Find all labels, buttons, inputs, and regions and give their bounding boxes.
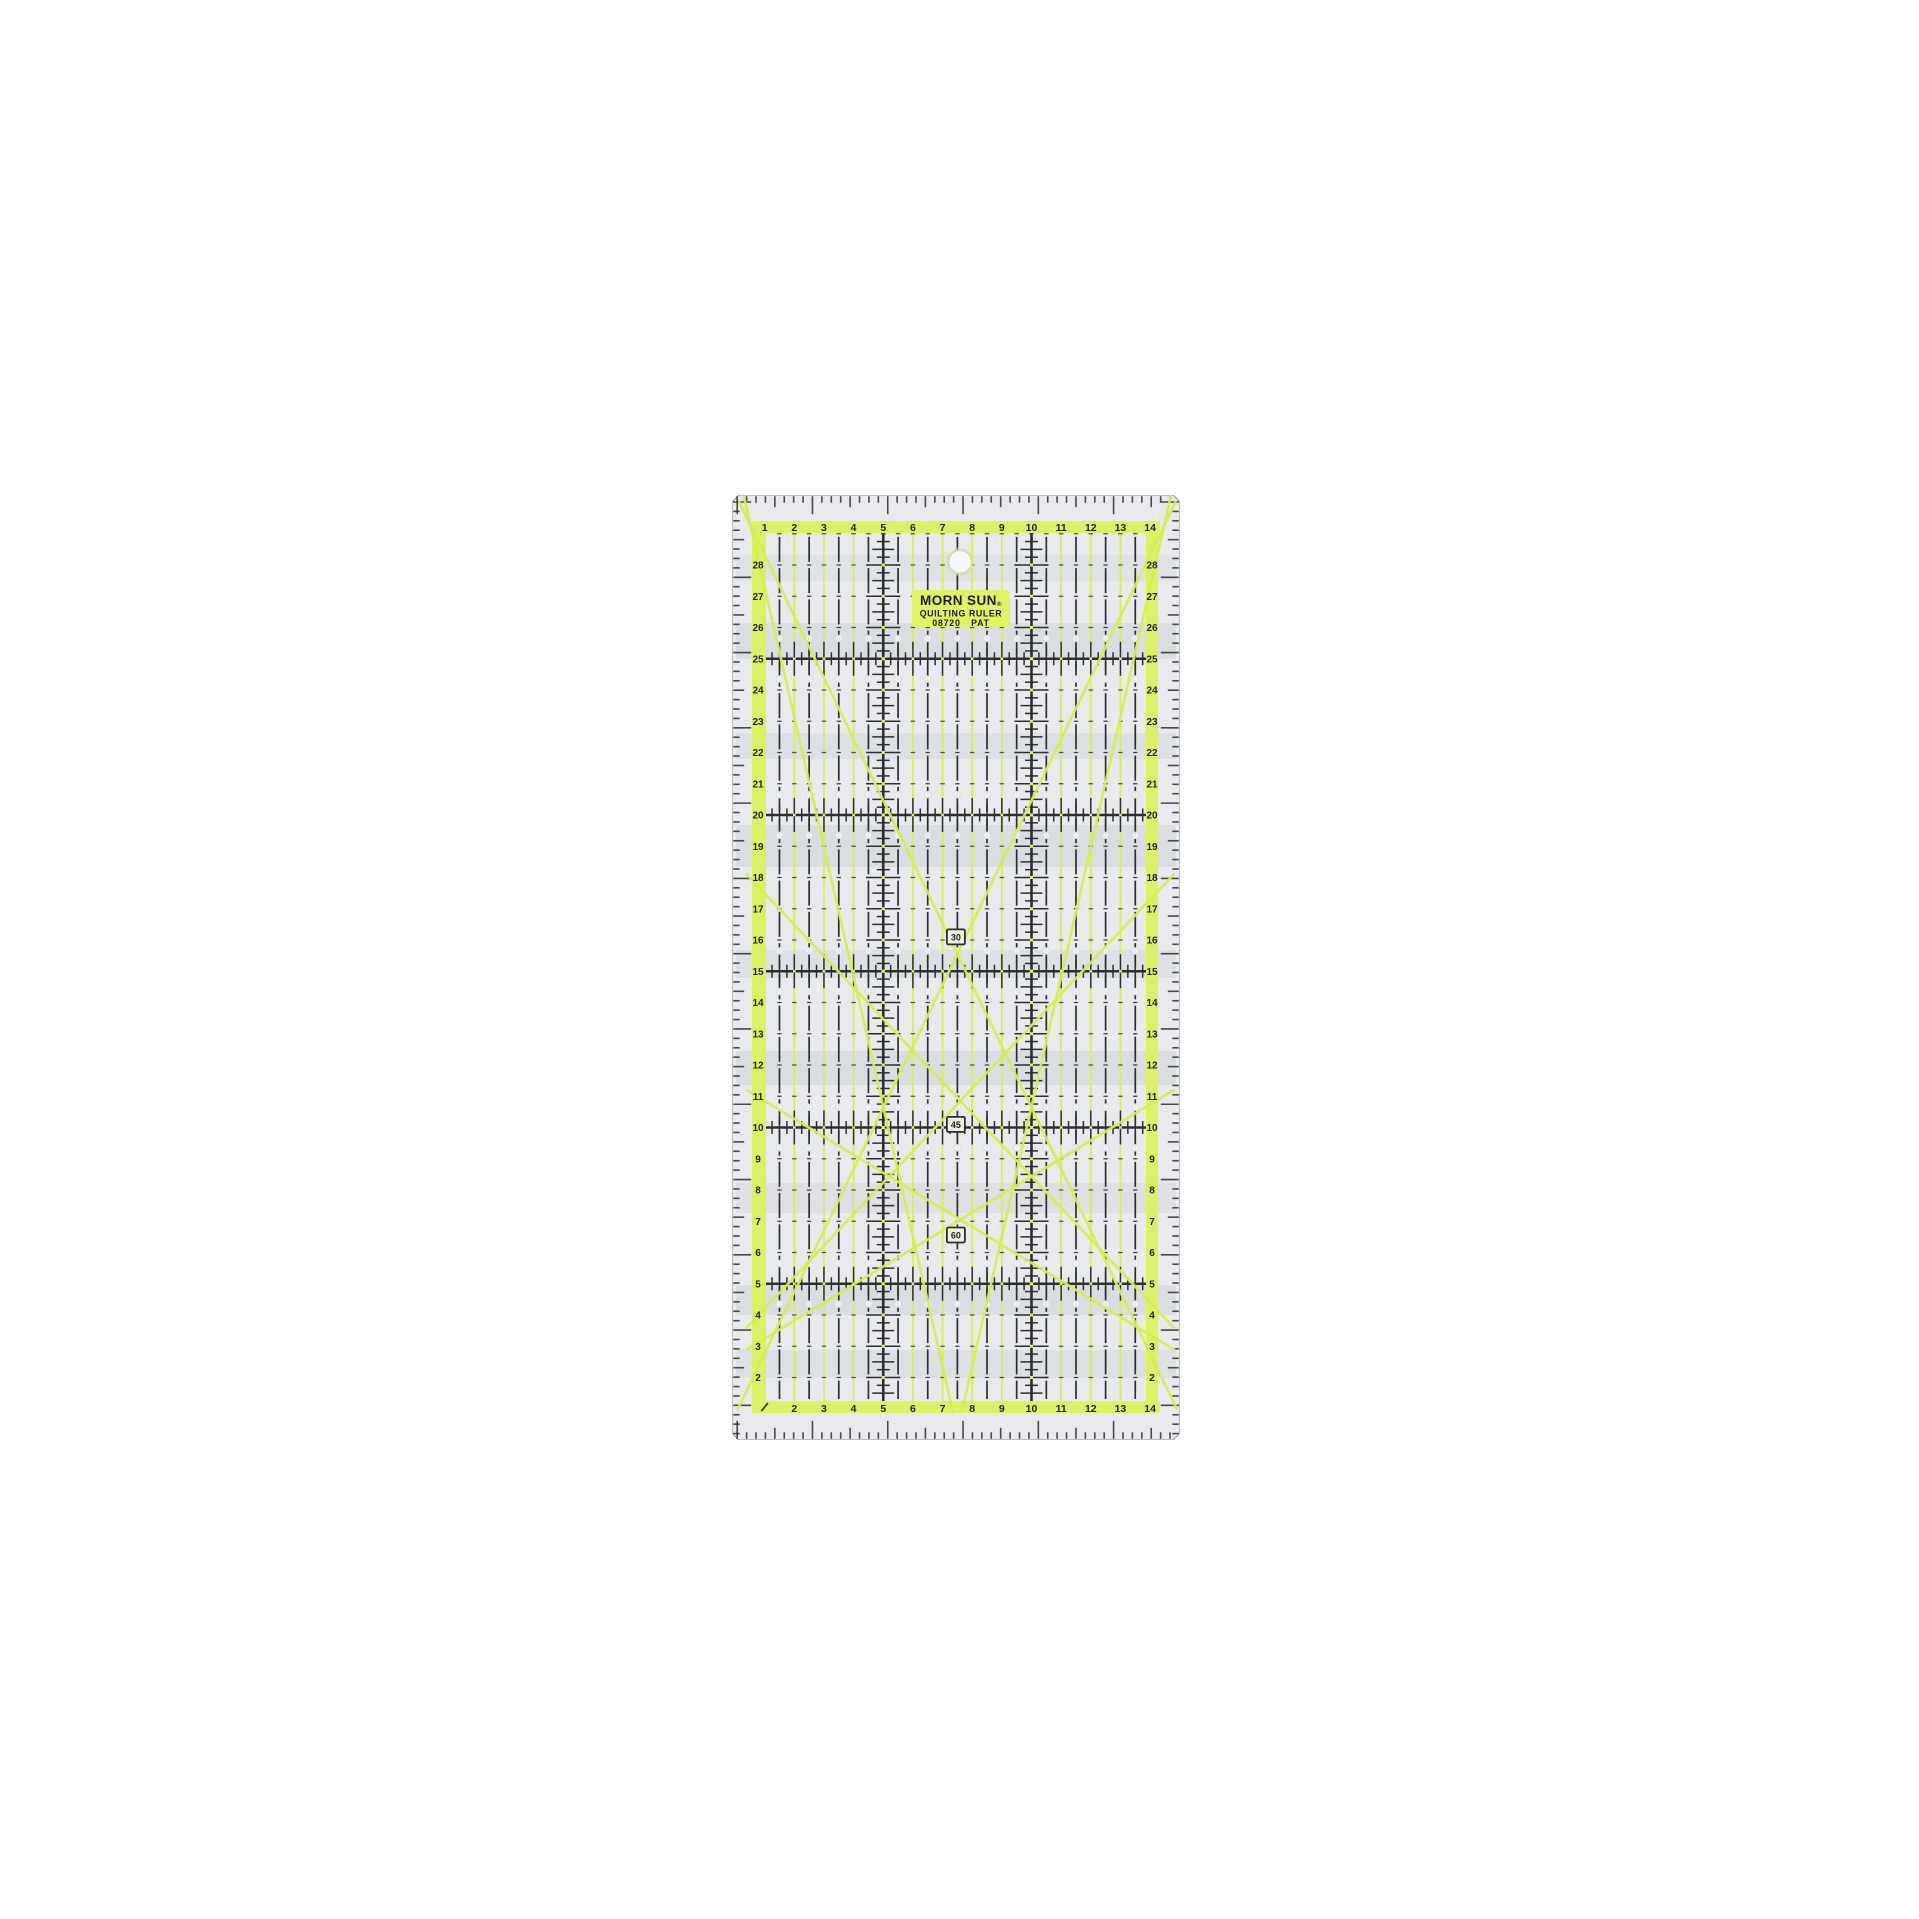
scale-number: 3 [755,1342,761,1353]
scale-number: 14 [1144,1403,1156,1415]
scale-number: 8 [1149,1186,1155,1197]
scale-number: 25 [1146,654,1158,665]
scale-number: 4 [755,1311,761,1322]
scale-number: 25 [752,654,764,665]
scale-number: 24 [752,686,764,697]
scale-number: 19 [752,842,764,853]
brand-product-line: QUILTING RULER [920,609,1003,619]
hang-hole [949,550,972,573]
scale-number: 5 [880,1403,886,1415]
scale-number: 17 [752,904,764,915]
angle-value-45: 45 [951,1120,961,1130]
scale-number: 4 [1149,1311,1155,1322]
scale-number: 14 [1146,998,1158,1009]
scale-number: 28 [752,561,764,572]
brand-name: MORN SUN® [920,593,1002,608]
scale-number: 15 [1146,967,1158,978]
scale-number: 11 [1147,1092,1158,1103]
scale-number: 3 [1149,1342,1155,1353]
scale-number: 5 [880,522,886,534]
scale-number: 16 [1146,936,1158,947]
scale-number: 21 [1146,779,1158,790]
scale-number: 9 [999,1403,1005,1415]
scale-number: 9 [755,1154,761,1165]
scale-number: 7 [940,522,946,534]
scale-number: 6 [755,1248,761,1259]
scale-number: 27 [752,592,764,603]
scale-number: 12 [752,1061,764,1072]
scale-number: 16 [752,936,764,947]
scale-number: 18 [1146,873,1158,884]
scale-number: 6 [910,522,916,534]
scale-number: 23 [752,717,764,728]
brand-model-number: 08720 PAT [932,618,990,628]
hang-hole [947,549,973,575]
scale-number: 20 [1146,811,1158,822]
quilting-ruler: MORN SUN®QUILTING RULER08720 PAT30456012… [732,495,1180,1440]
scale-number: 10 [1146,1123,1158,1134]
scale-number: 12 [1085,522,1097,534]
scale-number: 7 [1149,1217,1155,1228]
scale-number: 11 [1056,1403,1067,1415]
scale-number: 3 [821,522,827,534]
scale-number: 7 [755,1217,761,1228]
scale-number: 21 [752,779,764,790]
scale-number: 2 [791,1403,797,1415]
scale-number: 9 [999,522,1005,534]
photo-background: MORN SUN®QUILTING RULER08720 PAT30456012… [0,0,1919,1919]
scale-number: 13 [752,1029,764,1040]
scale-number: 22 [752,748,764,759]
scale-number: 11 [753,1092,764,1103]
scale-number: 20 [752,811,764,822]
scale-number: 8 [969,522,975,534]
scale-number: 24 [1146,686,1158,697]
angle-value-60: 60 [951,1230,961,1240]
scale-number: 4 [851,522,857,534]
brand-label: MORN SUN®QUILTING RULER08720 PAT [912,590,1010,628]
scale-number: 6 [910,1403,916,1415]
scale-number: 14 [752,998,764,1009]
scale-number: 26 [1146,623,1158,634]
scale-number: 2 [755,1373,761,1384]
scale-number: 10 [1026,1403,1038,1415]
scale-number: 2 [1149,1373,1155,1384]
scale-number: 12 [1085,1403,1097,1415]
scale-number: 5 [1149,1279,1155,1290]
scale-number: 13 [1115,522,1127,534]
scale-number: 11 [1056,522,1067,534]
scale-number: 19 [1146,842,1158,853]
scale-number: 22 [1146,748,1158,759]
scale-number: 5 [755,1279,761,1290]
scale-number: 23 [1146,717,1158,728]
scale-number: 26 [752,623,764,634]
scale-number: 4 [851,1403,857,1415]
scale-number: 12 [1146,1061,1158,1072]
scale-number: 28 [1146,561,1158,572]
scale-number: 3 [821,1403,827,1415]
scale-number: 17 [1146,904,1158,915]
scale-number: 14 [1144,522,1156,534]
scale-number: 15 [752,967,764,978]
scale-number: 18 [752,873,764,884]
scale-number: 7 [940,1403,946,1415]
scale-number: 8 [755,1186,761,1197]
scale-number: 8 [969,1403,975,1415]
scale-number: 10 [752,1123,764,1134]
scale-number: 6 [1149,1248,1155,1259]
scale-number: 9 [1149,1154,1155,1165]
scale-number: 13 [1146,1029,1158,1040]
scale-number: 10 [1026,522,1038,534]
angle-value-30: 30 [951,932,961,942]
scale-number: 27 [1146,592,1158,603]
scale-number: 13 [1115,1403,1127,1415]
scale-number: 1 [762,522,768,534]
scale-number: 2 [791,522,797,534]
